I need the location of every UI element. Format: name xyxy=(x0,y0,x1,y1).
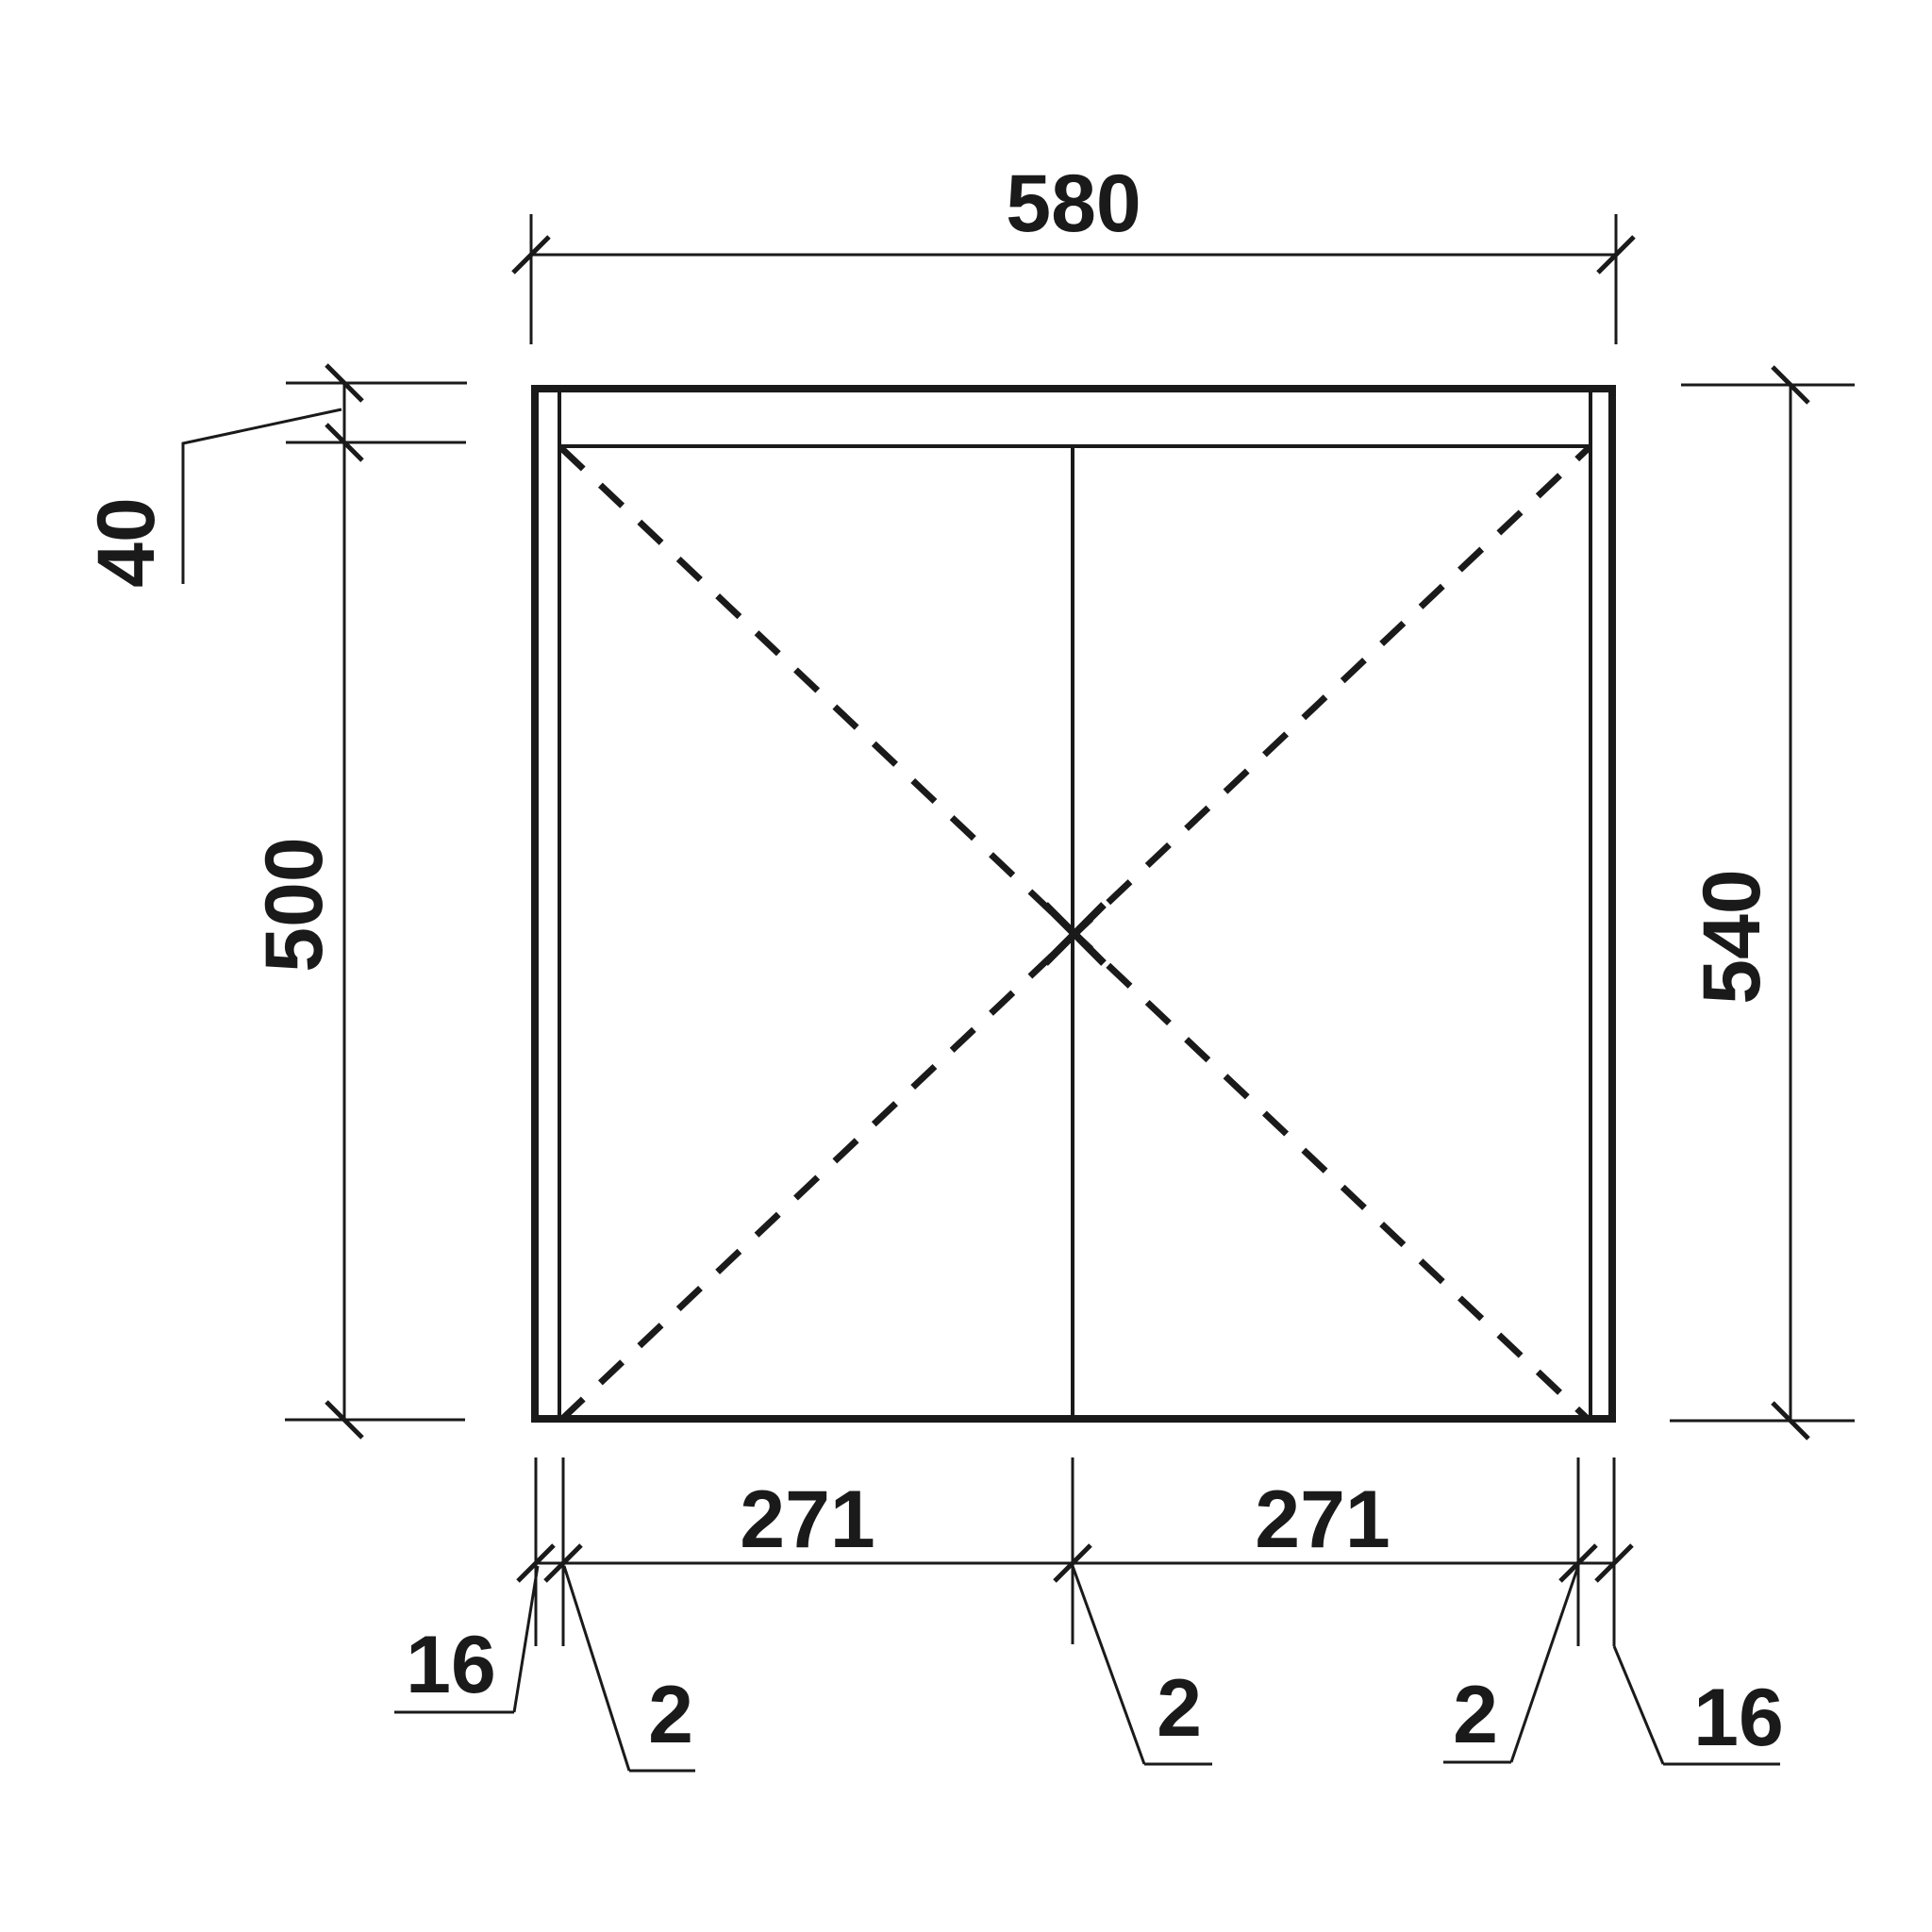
label-2-center: 2 xyxy=(1157,1663,1202,1754)
dim-271-right-label: 271 xyxy=(1255,1474,1391,1565)
technical-drawing-page: 580 40 500 540 271 271 16 2 2 2 16 xyxy=(0,0,1932,1932)
dim-271-left-label: 271 xyxy=(740,1474,875,1565)
label-16-left-leader xyxy=(514,1566,538,1712)
label-2-right-leader xyxy=(1511,1566,1578,1762)
cabinet-elevation-drawing: 580 40 500 540 271 271 16 2 2 2 16 xyxy=(0,0,1932,1932)
label-16-left: 16 xyxy=(406,1620,496,1710)
dim-540-label: 540 xyxy=(1687,869,1777,1005)
dim-40-label: 40 xyxy=(81,497,172,588)
label-2-left: 2 xyxy=(648,1670,693,1760)
label-2-left-leader xyxy=(564,1566,629,1771)
dim-500-label: 500 xyxy=(249,837,340,973)
dim-40-leader xyxy=(183,409,341,584)
dim-580-label: 580 xyxy=(1006,158,1141,249)
label-16-right: 16 xyxy=(1693,1673,1784,1763)
label-2-center-leader xyxy=(1073,1566,1144,1764)
label-16-right-leader xyxy=(1614,1646,1663,1764)
label-2-right: 2 xyxy=(1453,1670,1498,1760)
